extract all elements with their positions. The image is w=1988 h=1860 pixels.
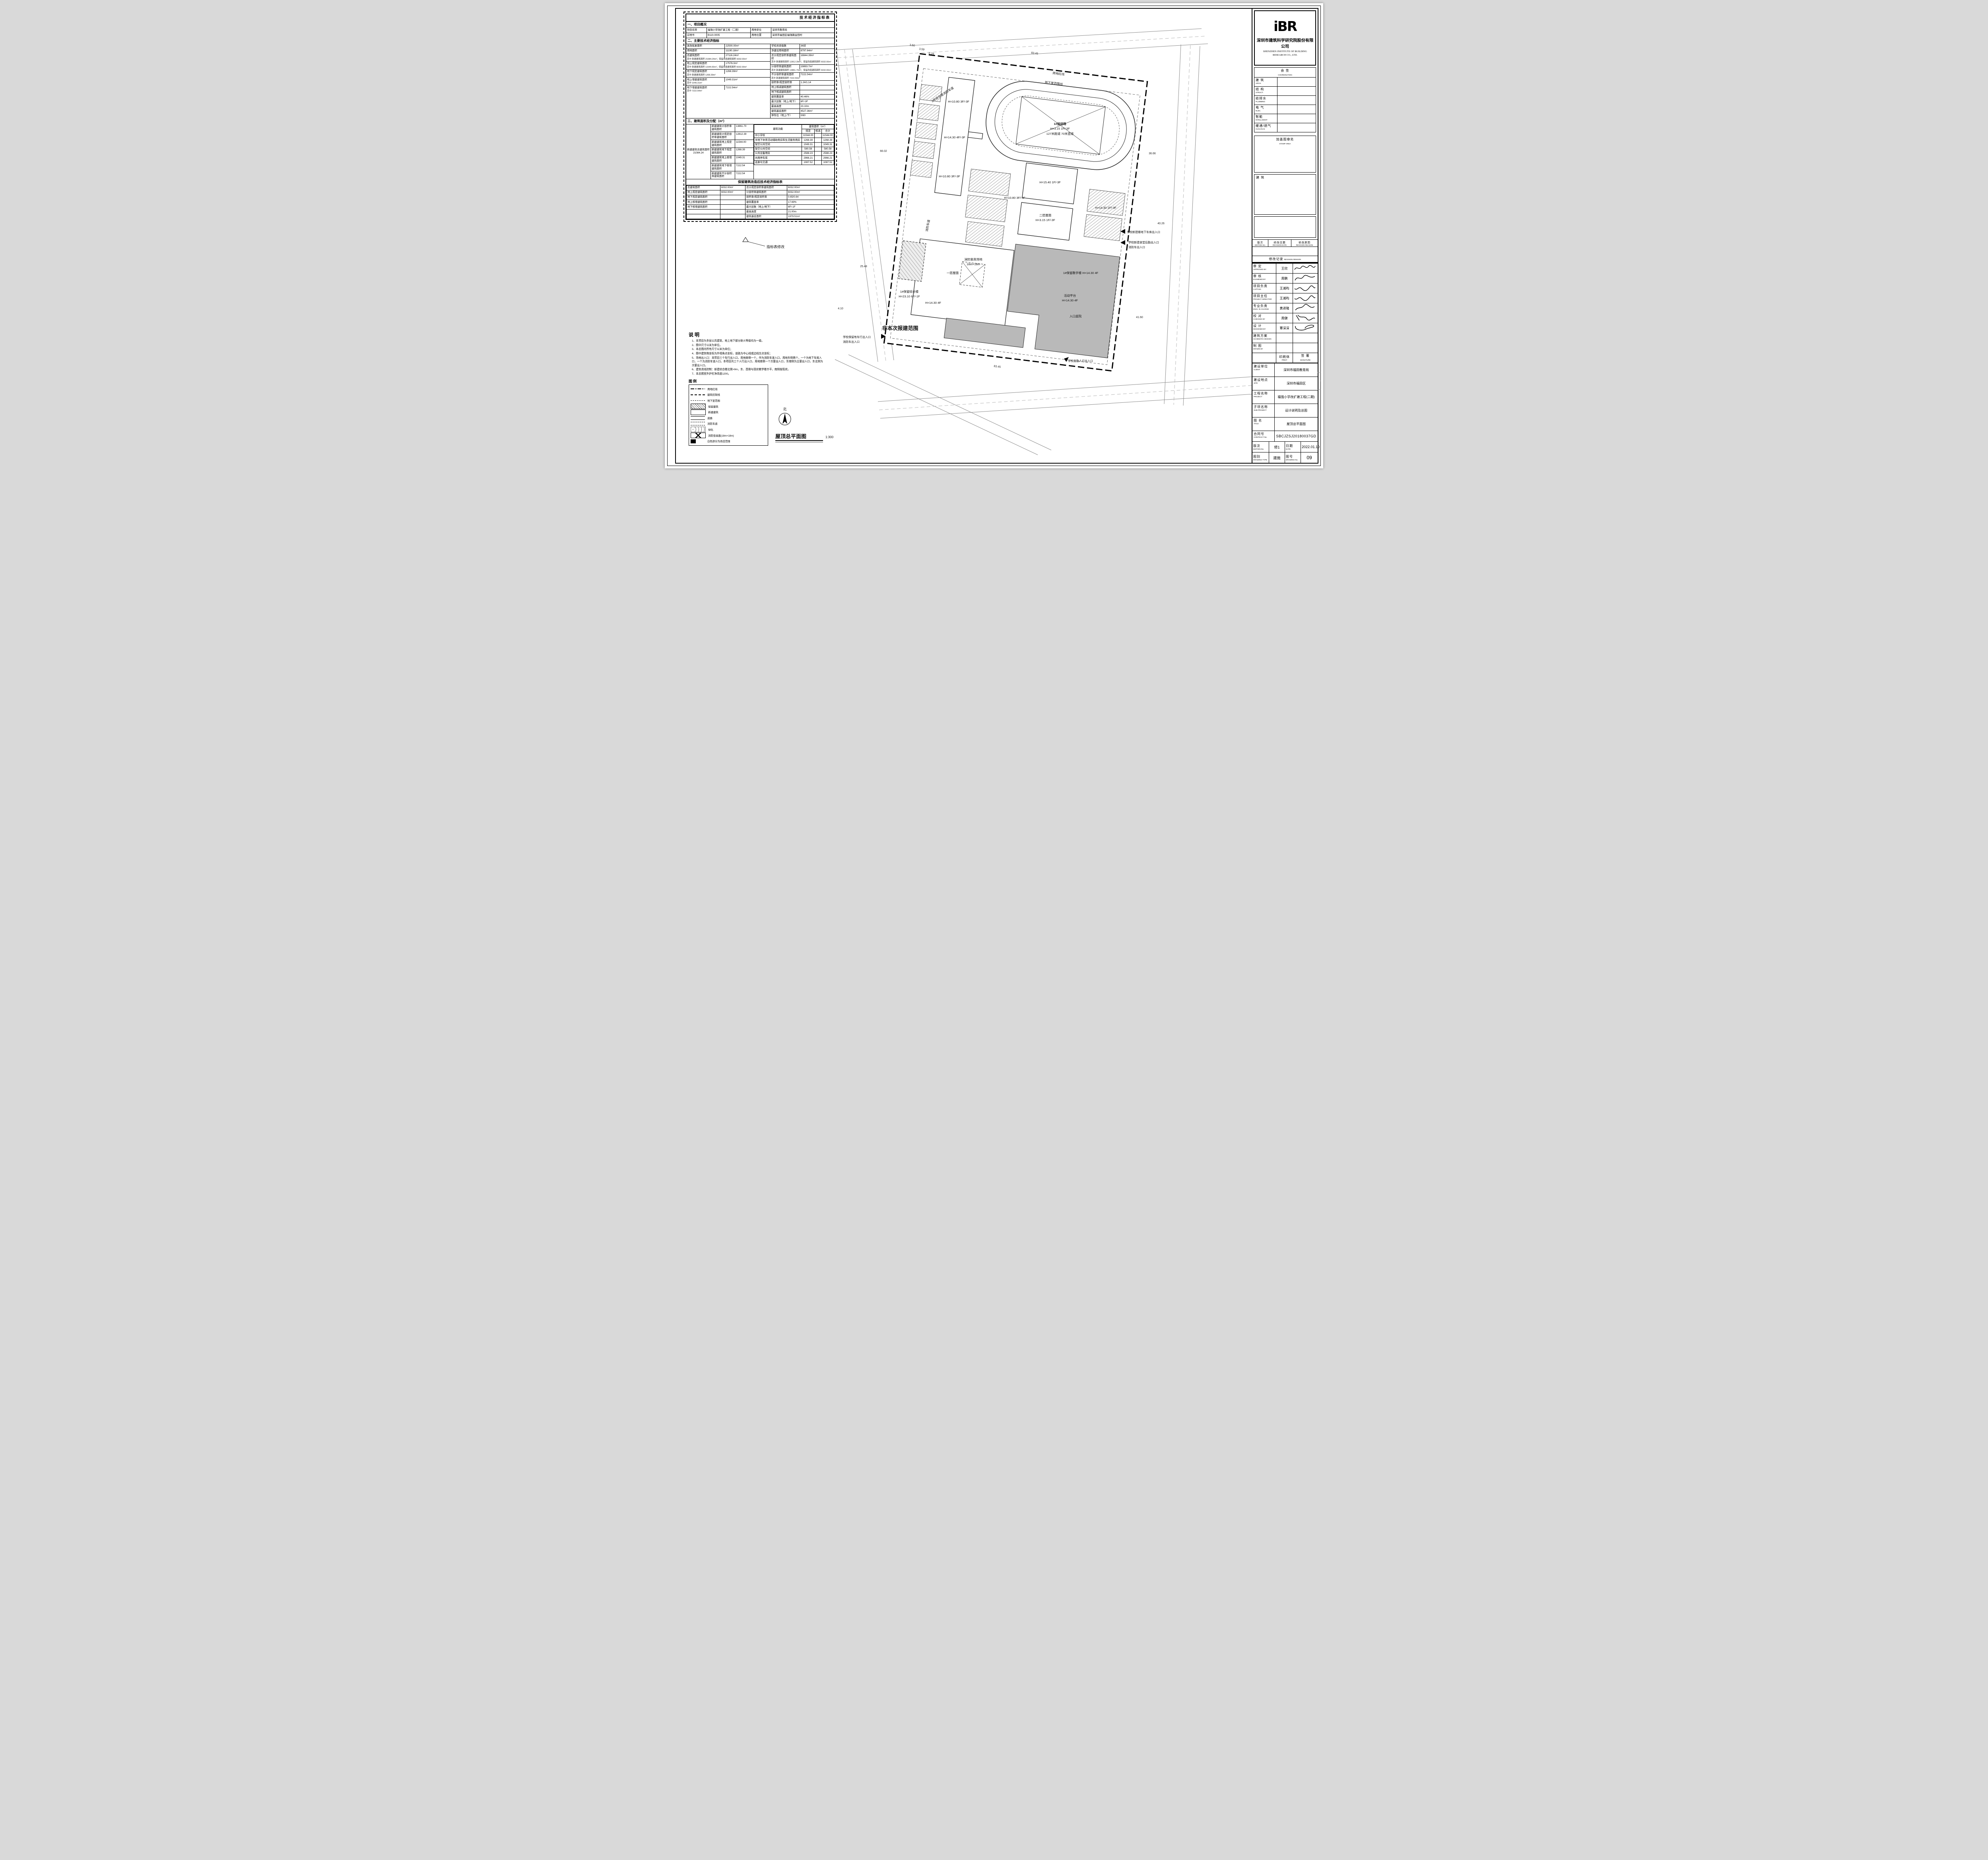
info-value: 福强小学改扩建工程(二期) bbox=[1275, 390, 1318, 404]
site-boundary-group bbox=[884, 54, 1147, 371]
edition-label: 版次 bbox=[1253, 444, 1268, 448]
cell-value: 2966.21 bbox=[802, 156, 814, 160]
print-label: 印刷体 bbox=[1279, 355, 1290, 359]
signature-scribble bbox=[1294, 284, 1316, 292]
plan-label: 1#运动场 bbox=[1054, 122, 1066, 126]
functions-table: 建筑功能 建筑面积（m²） 规定 核减 合计 中小学校11544.0011544… bbox=[754, 124, 834, 165]
cell-value: 17576.0m² bbox=[725, 62, 770, 66]
info-label-en: SITE bbox=[1254, 382, 1273, 384]
signature-cell bbox=[1293, 333, 1318, 343]
sign-role: 校 对 bbox=[1253, 314, 1275, 318]
section4-table: 总建筑面积6032.00m²总计规定容积率建筑面积6032.00m² 地上规定建… bbox=[686, 185, 834, 219]
dimension: 41.60 bbox=[1136, 316, 1143, 319]
note-item: 5、场地出入口：本项目三个车行出入口，用地南侧一个，作为消防车道入口，用地东侧两… bbox=[692, 356, 825, 368]
contract-label: 合同号 bbox=[1254, 432, 1273, 436]
cell-value: 21.00m bbox=[787, 210, 834, 214]
sign-role: 建筑方案 bbox=[1253, 334, 1275, 338]
date-label-en: DATE bbox=[1286, 448, 1300, 450]
revision-record-label-en: REVISION REMARK bbox=[1284, 258, 1301, 260]
info-label: 子项名称 bbox=[1254, 405, 1273, 409]
cell-value: 6032.00m² bbox=[720, 190, 745, 195]
discipline-sign-cell bbox=[1277, 105, 1316, 114]
cell-value bbox=[800, 85, 834, 90]
cell-value: 2588.23 bbox=[821, 151, 834, 156]
section2-left: 发改批复面积22500.00m² 用地面积11190.18m² 总建筑面积271… bbox=[686, 44, 771, 118]
table-revision-callout: 指标表修改 bbox=[767, 245, 784, 249]
dimension: 3.50 bbox=[909, 44, 915, 47]
road-symbol bbox=[691, 416, 705, 420]
dimension: 83.45 bbox=[994, 365, 1001, 369]
drawing-type-label-en: DRAWING TYPE bbox=[1253, 459, 1268, 461]
revision-empty-row bbox=[1252, 247, 1318, 256]
entrance-callout: 消防车出入口 bbox=[1128, 245, 1145, 249]
cell-label: 宗地号 bbox=[686, 33, 707, 38]
cell-label: 地下核增建筑面积 bbox=[687, 204, 720, 209]
legend-box: 用地红线 建筑控制线 地下室范围 保留建筑 新建建筑 道路 消防车道 绿化 消防… bbox=[689, 384, 768, 446]
cell-value: 6032.00m² bbox=[720, 185, 745, 190]
cell-value: 27116.24m² bbox=[725, 54, 770, 58]
plan-label: H=10.80 3F/-3F bbox=[948, 100, 969, 103]
sheet-title: 屋顶总平面图 bbox=[775, 433, 806, 439]
cell-value: 11190.18m² bbox=[725, 49, 770, 53]
sign-role: 审 定 bbox=[1253, 264, 1275, 268]
discipline-sign-cell bbox=[1277, 114, 1316, 123]
plan-label: 二层屋面 bbox=[1039, 214, 1052, 217]
revision-record-label: 修改记录 bbox=[1269, 257, 1283, 261]
dimension: 36.66 bbox=[1149, 152, 1156, 155]
dimension: 3.59 bbox=[919, 48, 924, 51]
cell-label: 学校总班级数 bbox=[771, 44, 800, 49]
signature-scribble bbox=[1294, 274, 1316, 282]
section3-mid: 新建建筑计容积率建筑面积13861.70 新建建筑计规定容积率建筑面积12812… bbox=[711, 124, 754, 179]
cell-value: 11544.00 bbox=[802, 134, 814, 138]
signature-label: 签 署 bbox=[1301, 354, 1309, 357]
entrance-callout: 消防车出入口 bbox=[843, 340, 860, 344]
cell-subvalue: 其中 新建建筑面积 11544.00m²；保留改造建筑面积 6032.00m² bbox=[686, 66, 770, 70]
cell-label: 架空公共空间 bbox=[754, 147, 802, 151]
cell-label: 地下规定建筑面积 bbox=[687, 195, 720, 200]
sign-role-en: PROJECT DIRECTOR bbox=[1253, 298, 1275, 300]
cell-value: 1087.52 bbox=[821, 160, 834, 165]
cell-label: 新建建筑总建筑面积 bbox=[687, 148, 710, 151]
cell-value bbox=[720, 214, 745, 219]
date-label: 日期 bbox=[1286, 444, 1300, 448]
cell-value: 7222.54 bbox=[735, 163, 753, 171]
cell-value: 7222.54m² bbox=[800, 73, 834, 77]
sign-role-en: APPROVED BY bbox=[1253, 268, 1275, 270]
note-item: 2、图中尺寸以米为单位。 bbox=[692, 344, 825, 348]
dimension: 83.45 bbox=[1031, 52, 1038, 55]
table-title: 技术经济指标表 bbox=[686, 14, 834, 22]
cell-label: 停车位（地上/下） bbox=[771, 114, 800, 118]
rev-col-en: REVISION REASON bbox=[1292, 244, 1317, 246]
cell-label: 新建建筑地上规定建筑面积 bbox=[711, 140, 735, 148]
discipline-label: 电 气 bbox=[1256, 105, 1276, 110]
sign-role: 项目负责 bbox=[1253, 284, 1275, 288]
info-label-en: PROJECT bbox=[1254, 396, 1273, 398]
cell-label: 新建建筑不计容积率建筑面积 bbox=[711, 171, 735, 179]
plan-label: 消防登高场地 bbox=[964, 257, 982, 261]
greenery-symbol bbox=[691, 427, 706, 432]
cell-label: 中小学校 bbox=[754, 134, 802, 138]
stamp-label-en: STAMP AREA bbox=[1279, 143, 1291, 145]
sign-name: 王欣 bbox=[1276, 264, 1293, 273]
signature-scribble bbox=[1294, 294, 1316, 302]
info-value: 深圳市福田区 bbox=[1275, 377, 1318, 390]
cell-value: 深圳市福田区福强路益田村 bbox=[771, 33, 834, 38]
cell-value: 1.24/1.14 bbox=[800, 81, 834, 85]
discipline-label: 给排水 bbox=[1256, 96, 1276, 101]
cell-value: 1049.31m² bbox=[725, 78, 770, 82]
cell-subvalue: 其中 1049.31m² bbox=[686, 82, 770, 85]
info-value: 深圳市福田教育局 bbox=[1275, 363, 1318, 377]
section2: 发改批复面积22500.00m² 用地面积11190.18m² 总建筑面积271… bbox=[686, 44, 834, 118]
north-label: 北 bbox=[783, 407, 786, 411]
cell-label: 计容积率建筑面积 bbox=[745, 190, 787, 195]
dimension: 25.48 bbox=[860, 265, 867, 268]
drawing-no-label-en: DRAWING No. bbox=[1286, 459, 1300, 461]
fire-ladder-symbol bbox=[691, 433, 706, 438]
cell-label: 建筑基底面积 bbox=[771, 109, 800, 113]
out-of-scope-label: 非本次报建范围 bbox=[882, 325, 918, 331]
discipline-label: 建 筑 bbox=[1256, 78, 1276, 82]
cell-label: 最大层数（地上/地下） bbox=[745, 204, 787, 209]
cell-value: 17.69% bbox=[787, 200, 834, 204]
cell-label: 总计规定容积率建筑面积 bbox=[745, 185, 787, 190]
cell-value: 1268.39 bbox=[735, 148, 753, 155]
plan-label: H=14.30 4F bbox=[1062, 299, 1078, 302]
signature-block: 审 定APPROVED BY王欣 审 核EXAMINED BY周鹏 项目负责CA… bbox=[1252, 264, 1318, 363]
cell-value: 13861.70 bbox=[735, 124, 753, 132]
discipline-label-en: ELEC. bbox=[1256, 110, 1276, 112]
total-cell: 新建建筑总建筑面积 21084.24 bbox=[686, 124, 711, 179]
cell-value: 22500.00m² bbox=[725, 44, 770, 49]
entrance-callout: 学校后勤人行出入口 bbox=[1068, 359, 1093, 363]
cell-label: 用地位置 bbox=[751, 33, 771, 38]
cell-value: 1268.39m² bbox=[725, 70, 770, 74]
cell-label: 新建建筑地下核增建筑面积 bbox=[711, 163, 735, 171]
plan-label: 127米跑道 70米直道 bbox=[1046, 132, 1074, 136]
cell-label: 总建筑面积 bbox=[686, 54, 725, 58]
rev-col: 修改日期 bbox=[1269, 240, 1290, 244]
stamp-block: 加盖图章处STAMP AREA bbox=[1252, 134, 1318, 174]
sign-name: 周健 bbox=[1276, 313, 1293, 323]
contract-number: SBCJZSJ20180037GD bbox=[1275, 431, 1318, 441]
contract-label-en: CONTRACT No. bbox=[1254, 436, 1273, 438]
drawing-type-label: 图别 bbox=[1253, 454, 1268, 459]
cell-label: 总建筑面积 bbox=[687, 185, 720, 190]
plan-label: H=15.40 1F/-3F bbox=[1039, 181, 1061, 184]
legend-label: 消防登高面(18m×18m) bbox=[708, 434, 734, 437]
cell-subvalue: 其中 新建建筑面积 7222.54m² bbox=[771, 77, 834, 81]
table-row: 宗地号 B110-0005 用地位置 深圳市福田区福强路益田村 bbox=[686, 33, 834, 38]
info-value: 设计说明及总图 bbox=[1275, 404, 1318, 417]
signature-scribble bbox=[1294, 264, 1316, 272]
plan-label: H=14.30 4F bbox=[925, 301, 941, 305]
cell-value: 12812.39 bbox=[735, 132, 753, 140]
cell-value: 福强小学改扩建工程（二期） bbox=[707, 28, 751, 33]
info-label-en: TITLE bbox=[1254, 423, 1273, 425]
sign-role-en: EXAMINED BY bbox=[1253, 278, 1275, 280]
signature-scribble bbox=[1294, 314, 1316, 322]
cell-subvalue: 其中 新建建筑面积 12812.39m²；保留改造建筑面积 6032.00m² bbox=[771, 61, 834, 64]
sign-name: 王湘昀 bbox=[1276, 283, 1293, 293]
cell-label: 建筑覆盖率 bbox=[745, 200, 787, 204]
cell-label: 最大层数（地上/地下） bbox=[771, 99, 800, 104]
info-label-en: CLIENT bbox=[1254, 369, 1273, 371]
cell-subvalue: 其中 新建建筑面积 21084.24m²；保留改造建筑面积 6032.00m² bbox=[686, 58, 770, 62]
table-row: 项目名称 福强小学改扩建工程（二期） 用地单位 深圳市教育局 bbox=[686, 28, 834, 33]
plan-label: 18m×18m bbox=[967, 262, 980, 266]
sign-name bbox=[1276, 343, 1293, 353]
cell-label: 项目名称 bbox=[686, 28, 707, 33]
cell-value: 6032.00m² bbox=[787, 185, 834, 190]
cell-value: 580.58 bbox=[802, 147, 814, 151]
section4-heading: 保留建筑改造后技术经济指标表 bbox=[686, 179, 834, 185]
north-arrow bbox=[779, 413, 791, 425]
retained-tower bbox=[899, 241, 926, 281]
cell-value: 1087.52 bbox=[802, 160, 814, 165]
cell-value: 0/60 bbox=[800, 114, 834, 118]
sign-role-en: ENGI. IN CHARGE bbox=[1253, 308, 1275, 310]
sign-name bbox=[1276, 333, 1293, 343]
discipline-label: 暖通/燃气 bbox=[1256, 124, 1276, 128]
note-item: 7、本总图室外护栏净高度1200。 bbox=[692, 372, 825, 376]
cell-value: 1268.39 bbox=[821, 138, 834, 142]
sign-role: 设 计 bbox=[1253, 324, 1275, 328]
cell-value: 580.58 bbox=[821, 147, 834, 151]
plan-label: H=23.10 6F/-1F bbox=[899, 295, 920, 298]
control-line-symbol bbox=[691, 394, 705, 395]
cell-value: 1268.39 bbox=[802, 138, 814, 142]
cell-value bbox=[814, 147, 821, 151]
cell-value: 2588.23 bbox=[802, 151, 814, 156]
discipline-label: 结 构 bbox=[1256, 87, 1276, 91]
signature-cell bbox=[1293, 264, 1318, 273]
cell-value bbox=[814, 134, 821, 138]
discipline-label-en: ARCH. bbox=[1256, 82, 1276, 84]
cell-value bbox=[720, 200, 745, 204]
cell-value: 7222.54 bbox=[735, 171, 753, 179]
sign-role-en: CAPTAIN bbox=[1253, 288, 1275, 290]
cell-label: 地上规定建筑面积 bbox=[687, 190, 720, 195]
plan-label: H=14.30 4F/-3F bbox=[944, 136, 965, 139]
cell-value: 8797.64m² bbox=[800, 49, 834, 53]
signature-cell bbox=[1293, 274, 1318, 283]
note-item: 6、建筑退线控制：新建综合楼北侧>9m，东、西侧与现状教学楼齐平，南侧按现状。 bbox=[692, 368, 825, 372]
legend-title: 图例 bbox=[689, 379, 768, 384]
legend-label: 道路 bbox=[707, 416, 712, 420]
revision-triangle bbox=[743, 237, 748, 242]
sign-role: 专业负责 bbox=[1253, 304, 1275, 308]
col-header: 合计 bbox=[821, 129, 834, 133]
entrance-callout: 学校新建食堂后勤出入口 bbox=[1128, 241, 1159, 244]
cell-value bbox=[814, 160, 821, 165]
legend-label: 用地红线 bbox=[707, 387, 718, 391]
cell-label: 走廊与交通 bbox=[754, 160, 802, 165]
note-item: 1、本项目为多层公共建筑，地上地下部分耐火等级均为一级。 bbox=[692, 339, 825, 343]
cell-label: 地上核减建筑面积 bbox=[771, 85, 800, 90]
cell-value: 11544.00 bbox=[821, 134, 834, 138]
renovation-area-symbol bbox=[691, 439, 696, 443]
info-label: 图 名 bbox=[1254, 418, 1273, 423]
sign-role-en: DRAWN BY bbox=[1253, 348, 1275, 350]
note-item: 3、本总图内所有尺寸以米为单位； bbox=[692, 348, 825, 351]
rev-col-en: REVISION DATE bbox=[1269, 244, 1290, 246]
plan-label: H=10.80 3F/-3F bbox=[1004, 196, 1025, 200]
cell-label: 地上增建建筑面积 bbox=[686, 78, 725, 82]
drawing-no-value: 09 bbox=[1301, 452, 1318, 463]
plan-label: H=14.30 1F/-3F bbox=[1095, 206, 1116, 210]
cell-value: 0.65/0.64 bbox=[787, 195, 834, 200]
col-header: 建筑功能 bbox=[754, 124, 802, 133]
cell-value: 18844.39m² bbox=[800, 54, 834, 61]
legend-panel: 图例 用地红线 建筑控制线 地下室范围 保留建筑 新建建筑 道路 消防车道 绿化… bbox=[689, 379, 768, 446]
discipline-box: 建 筑 bbox=[1252, 174, 1318, 239]
cell-subvalue: 其中 新建建筑面积 13861.70m²；保留改造建筑面积 6032.00m² bbox=[771, 69, 834, 73]
cell-label: 半地下体育活动辅助用房和生活服务用房 bbox=[754, 138, 802, 142]
cell-value bbox=[814, 151, 821, 156]
date-value: 2022.01.10 bbox=[1301, 442, 1320, 452]
plan-label: H=3.15 1F/-3F bbox=[1035, 218, 1055, 222]
rev-col: 版次 bbox=[1253, 240, 1267, 244]
section2-heading: 二、主要技术经济指标 bbox=[686, 38, 834, 44]
cell-value: 1049.31 bbox=[735, 156, 753, 163]
signature-scribble bbox=[1294, 324, 1316, 332]
sign-name: 覃深深 bbox=[1276, 323, 1293, 333]
coordination-title: 会 签 bbox=[1281, 69, 1289, 72]
discipline-sign-cell bbox=[1277, 87, 1316, 95]
info-label-en: SUB-PROJECT bbox=[1254, 409, 1273, 411]
cell-value: 36班 bbox=[800, 44, 834, 49]
cell-value bbox=[720, 210, 745, 214]
cell-label: 净建设用地面积 bbox=[771, 49, 800, 53]
cell-label: 最高高度 bbox=[745, 210, 787, 214]
dimension: 40.26 bbox=[1157, 222, 1165, 225]
cell-value: 4527.36m² bbox=[800, 109, 834, 113]
cell-label bbox=[687, 214, 720, 219]
notes-panel: 说明 1、本项目为多层公共建筑，地上地下部分耐火等级均为一级。 2、图中尺寸以米… bbox=[689, 332, 825, 376]
cell-value: 11544.00 bbox=[735, 140, 753, 148]
cell-label: 新建建筑计容积率建筑面积 bbox=[711, 124, 735, 132]
retained-building-symbol bbox=[691, 404, 706, 409]
stamp-label: 加盖图章处 bbox=[1276, 138, 1294, 141]
cell-label: 新建建筑计规定容积率建筑面积 bbox=[711, 132, 735, 140]
cell-value: 6F/-1F bbox=[787, 204, 834, 209]
cell-value: 7222.54m² bbox=[725, 85, 770, 90]
cell-value: 1049.31 bbox=[821, 142, 834, 147]
cell-value: 2966.21 bbox=[821, 156, 834, 160]
discipline-sign-cell bbox=[1277, 123, 1316, 132]
dimension: 4.10 bbox=[838, 307, 843, 310]
notes-title: 说明 bbox=[689, 332, 825, 338]
note-item: 4、图中建筑物坐标为外墙角点坐标，道路为中心线或边线交点坐标； bbox=[692, 352, 825, 356]
sign-role-en: DESIGNED BY bbox=[1253, 328, 1275, 330]
cell-value: 19893.7m² bbox=[800, 65, 834, 69]
plan-label: H=3.15 1F/-3F bbox=[1050, 127, 1070, 130]
cell-label: 新建建筑地下规定建筑面积 bbox=[711, 148, 735, 155]
sign-role: 审 核 bbox=[1253, 274, 1275, 278]
section3: 新建建筑总建筑面积 21084.24 新建建筑计容积率建筑面积13861.70 … bbox=[686, 124, 834, 179]
cell-label: 用地面积 bbox=[686, 49, 725, 53]
cell-label: 用地单位 bbox=[751, 28, 771, 33]
legend-label: 保留建筑 bbox=[708, 405, 718, 408]
cell-label: 地上核增建筑面积 bbox=[687, 200, 720, 204]
legend-label: 地下室范围 bbox=[707, 399, 720, 402]
signature-cell bbox=[1293, 293, 1318, 303]
entrance-callout: 学校保留有车行出入口 bbox=[843, 335, 871, 339]
cell-label: 发改批复面积 bbox=[686, 44, 725, 49]
discipline-label: 智能 bbox=[1256, 115, 1276, 119]
company-block: iBR 深圳市建筑科学研究院股份有限公司 SHENZHEN INSTITUTE … bbox=[1254, 10, 1316, 66]
plan-label: 1#保留综合楼 bbox=[900, 289, 919, 293]
company-name-cn: 深圳市建筑科学研究院股份有限公司 bbox=[1256, 37, 1314, 49]
cell-value: 6F/-3F bbox=[800, 99, 834, 104]
col-header: 规定 bbox=[802, 129, 814, 133]
sign-name: 周鹏 bbox=[1276, 274, 1293, 283]
signature-cell bbox=[1293, 303, 1318, 313]
signature-scribble bbox=[1294, 304, 1316, 312]
cell-label: 地上规定建筑面积 bbox=[686, 62, 725, 66]
coordination-block: 会 签COORDINATION 建 筑ARCH. 结 构STRUCT. 给排水P… bbox=[1252, 67, 1318, 134]
sheet-scale: 1:300 bbox=[825, 435, 834, 439]
cell-value: 40.46% bbox=[800, 95, 834, 99]
cell-value bbox=[814, 142, 821, 147]
project-info-block: 建设单位CLIENT深圳市福田教育局 建设地点SITE深圳市福田区 工程名称PR… bbox=[1252, 363, 1318, 463]
discipline-sign-cell bbox=[1277, 96, 1316, 105]
legend-label: 建筑控制线 bbox=[707, 393, 720, 396]
cell-label: 容积率/规定容积率 bbox=[745, 195, 787, 200]
cell-label: 共用停车库 bbox=[754, 156, 802, 160]
rev-col: 修改原因 bbox=[1292, 240, 1317, 244]
empty-cell bbox=[1252, 353, 1276, 363]
cell-label: 容积率/规定容积率 bbox=[771, 81, 800, 85]
signature-cell bbox=[1293, 313, 1318, 323]
cell-subvalue: 其中 7222.54m² bbox=[686, 90, 770, 93]
revision-block: 版次EDITION No. 修改日期REVISION DATE 修改原因REVI… bbox=[1252, 239, 1318, 264]
discipline-label-en: INTELLIGENT bbox=[1256, 119, 1276, 121]
cell-label: 不计容积率建筑面积 bbox=[771, 73, 800, 77]
discipline-title: 建 筑 bbox=[1256, 176, 1264, 179]
discipline-sign-cell bbox=[1277, 78, 1316, 86]
drawing-no-label: 图号 bbox=[1286, 454, 1300, 459]
cell-label: 计容积率建筑面积 bbox=[771, 65, 800, 69]
plan-label: H=10.80 3F/-3F bbox=[939, 175, 960, 178]
cell-value bbox=[720, 195, 745, 200]
discipline-label-en: STRUCT. bbox=[1256, 91, 1276, 93]
sign-role-en: CHECKED BY bbox=[1253, 318, 1275, 320]
discipline-label-en: PLUMBING bbox=[1256, 101, 1276, 103]
section1-heading: 一、项目概况 bbox=[686, 22, 834, 28]
section3-heading: 三、建筑面积及分配（m²） bbox=[686, 118, 834, 124]
info-value: 屋顶总平面图 bbox=[1275, 417, 1318, 431]
section3-functions: 建筑功能 建筑面积（m²） 规定 核减 合计 中小学校11544.0011544… bbox=[754, 124, 834, 179]
cell-value bbox=[814, 138, 821, 142]
cell-label bbox=[687, 210, 720, 214]
cell-value: B110-0005 bbox=[707, 33, 751, 38]
plan-label: 入口庭院 bbox=[1070, 314, 1082, 318]
cell-value: 1979.51m² bbox=[787, 214, 834, 219]
plan-label: 一层屋面 bbox=[947, 271, 959, 275]
legend-label: 新建建筑 bbox=[708, 410, 718, 414]
signature-cell bbox=[1293, 343, 1318, 353]
info-label: 建设单位 bbox=[1254, 364, 1273, 369]
cell-value: 21084.24 bbox=[693, 151, 703, 155]
cell-value: 23.10m bbox=[800, 104, 834, 109]
dimension: 66.02 bbox=[880, 150, 887, 153]
fire-lane-symbol bbox=[691, 422, 705, 425]
discipline-label-en: HVAC/GAS bbox=[1256, 128, 1276, 130]
